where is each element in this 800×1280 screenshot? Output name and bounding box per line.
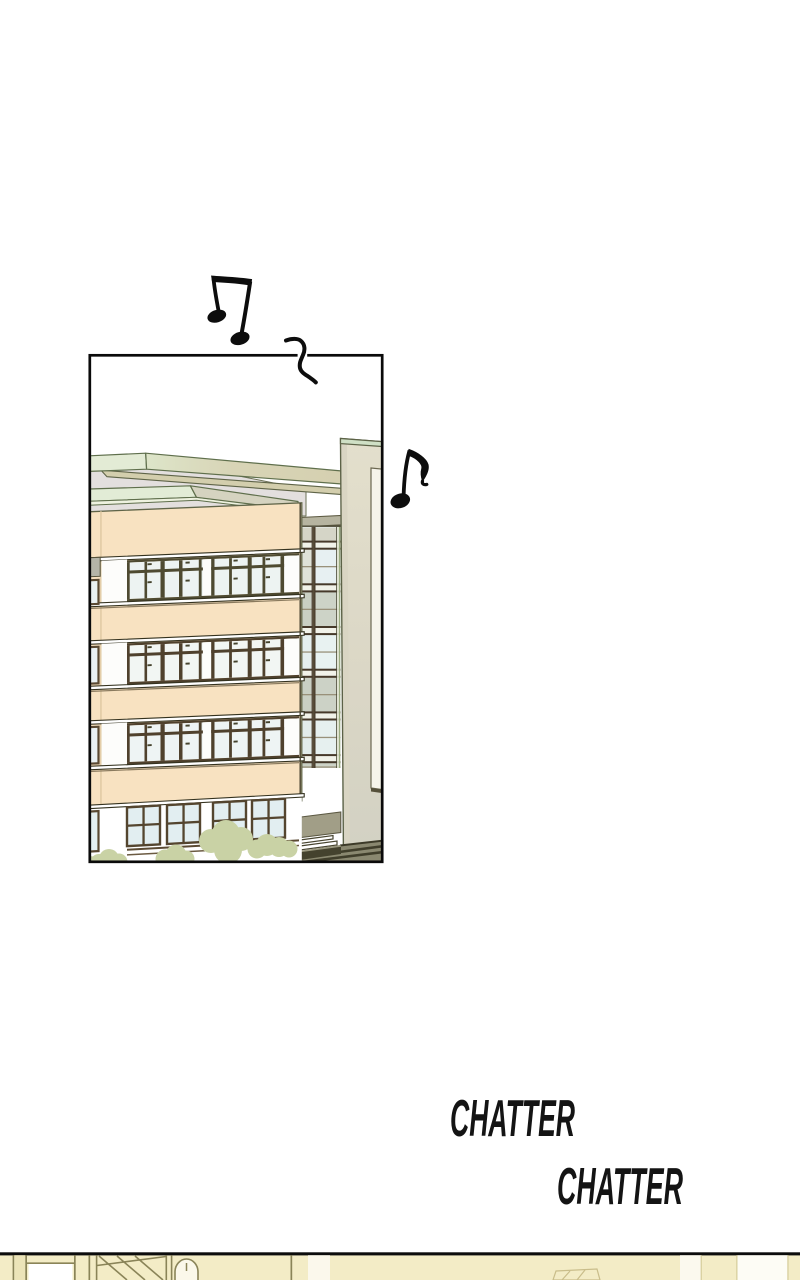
svg-text:CHATTER: CHATTER [557, 1158, 683, 1216]
svg-text:CHATTER: CHATTER [450, 1090, 575, 1148]
